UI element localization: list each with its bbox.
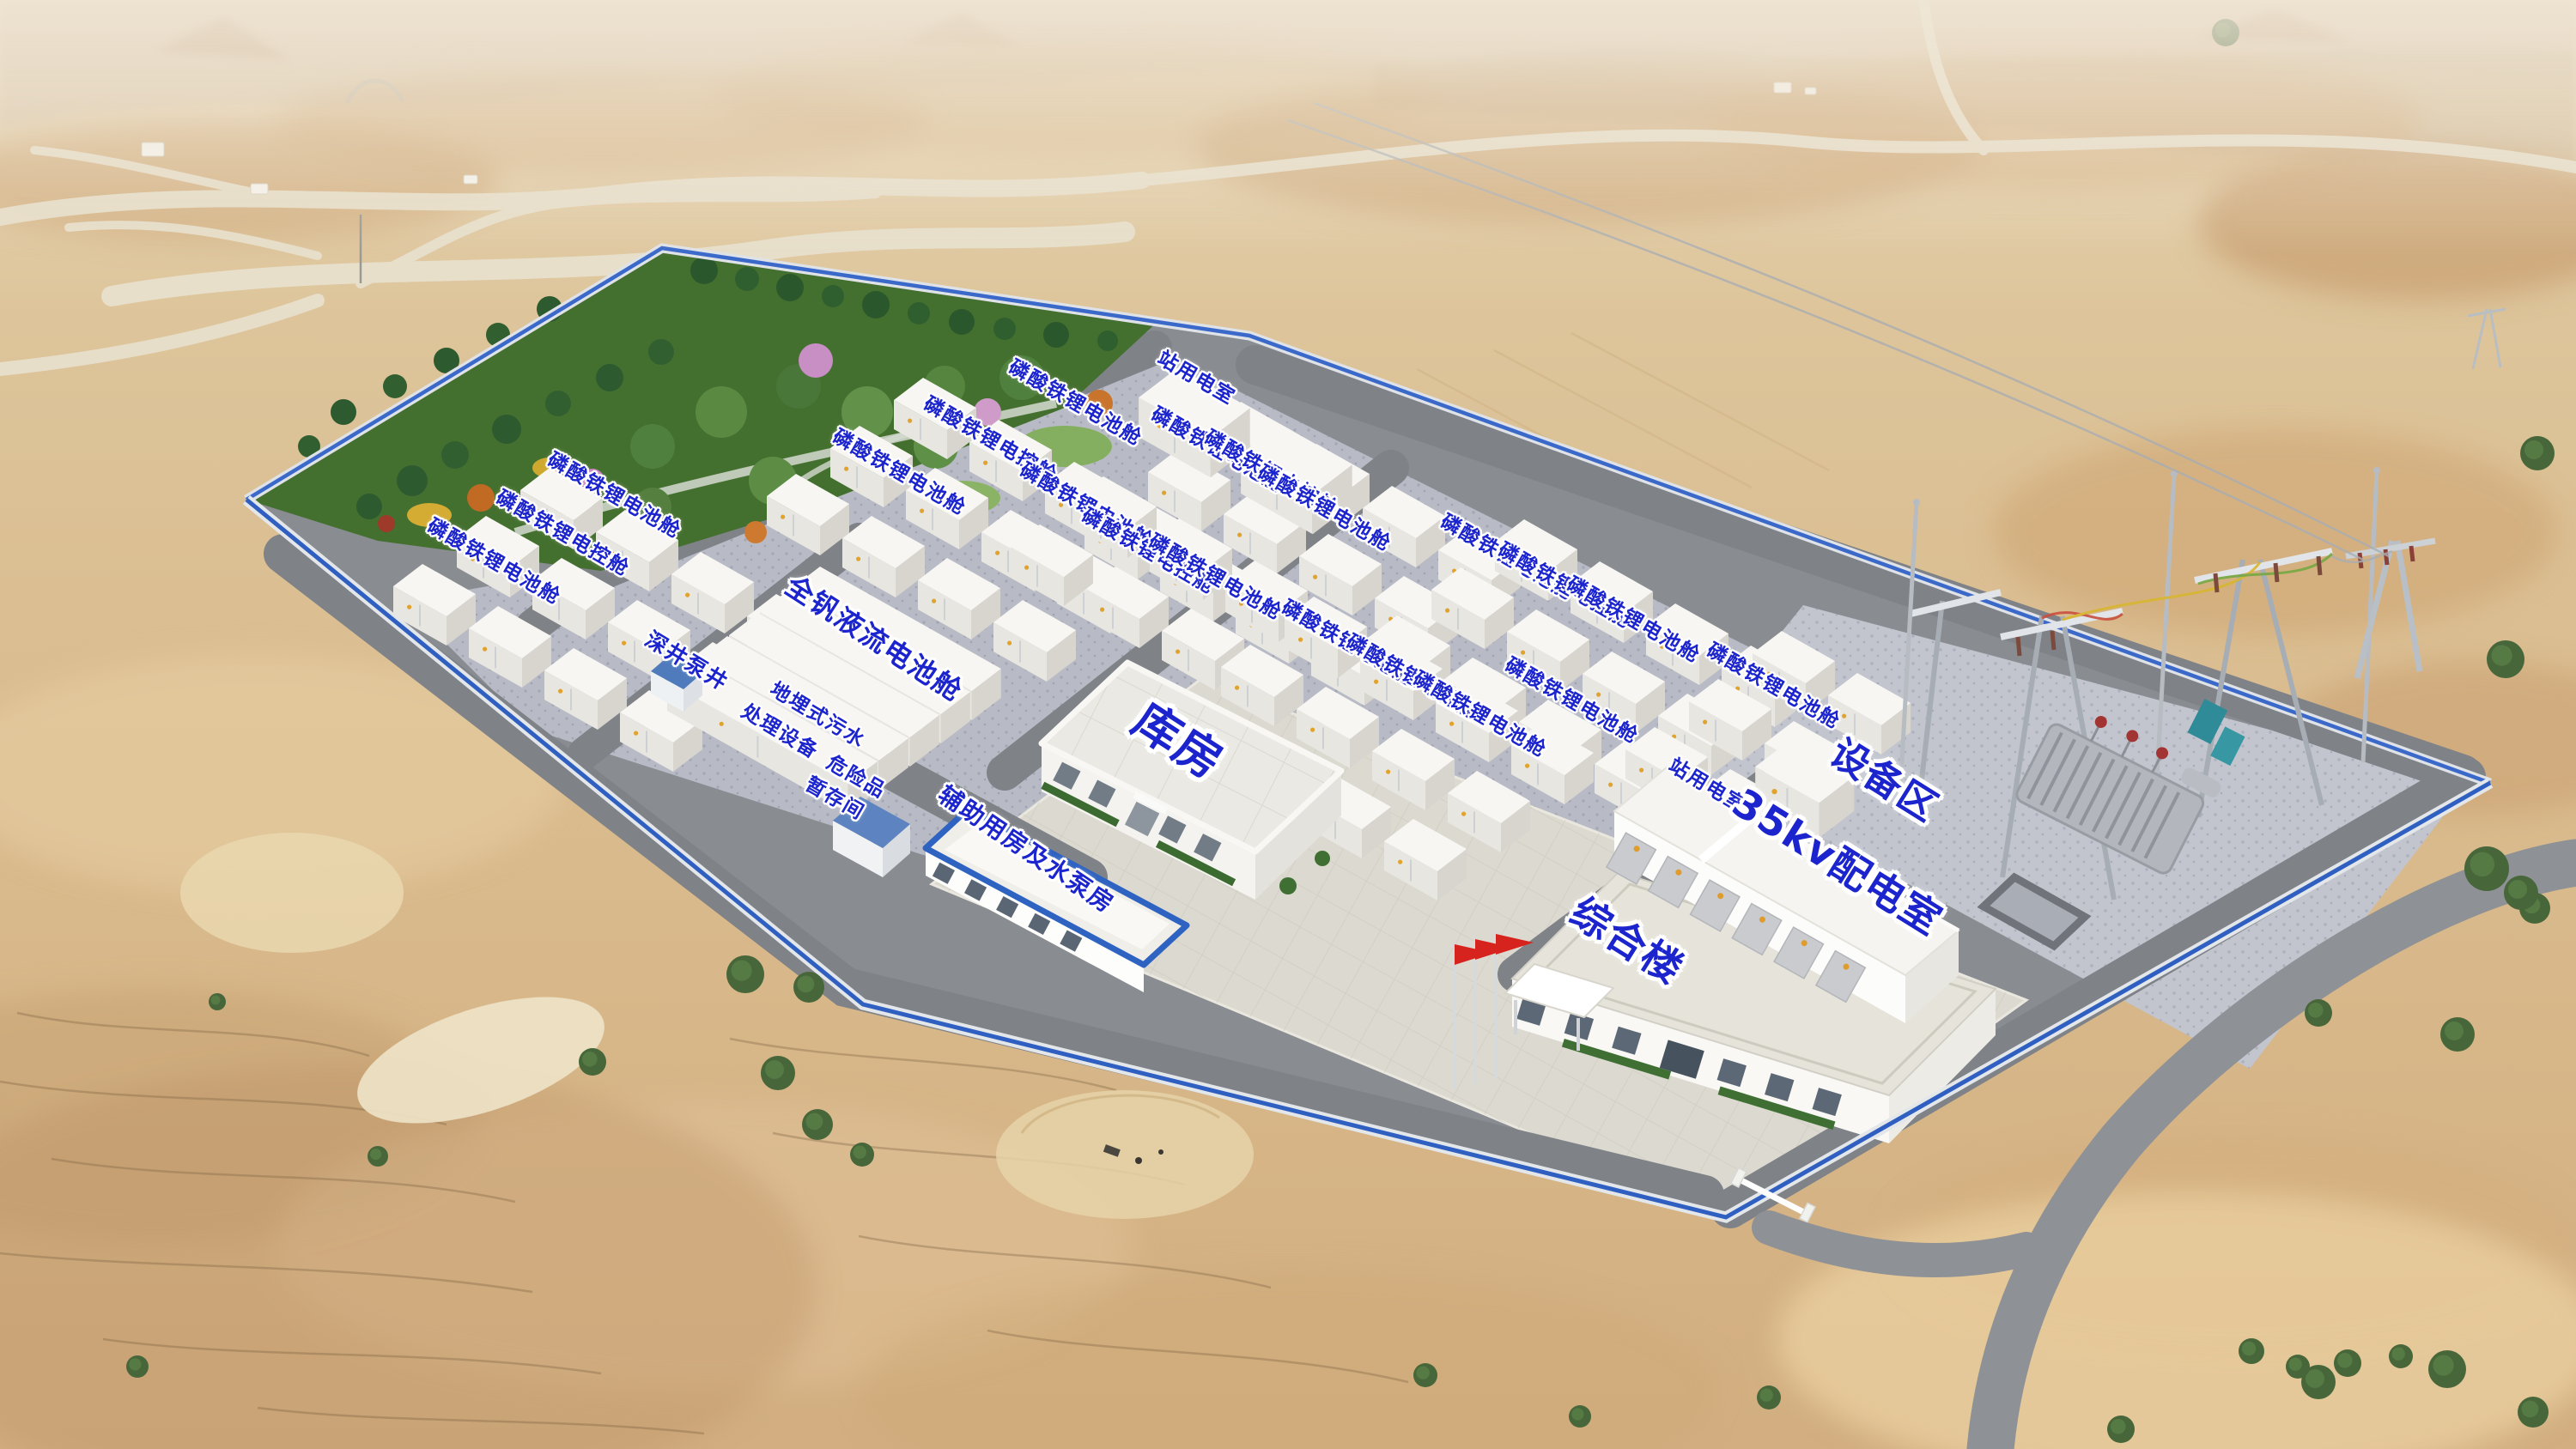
lfp-battery-cabin-label-14: 磷酸铁锂电池舱 — [1703, 640, 1843, 732]
annotation-labels-layer: 站用电室磷酸铁锂电池舱磷酸铁锂电控舱磷酸铁锂电池舱磷酸铁锂电池舱磷酸铁锂电控舱磷… — [0, 0, 2576, 1449]
station-power-room-label-1: 站用电室 — [1154, 349, 1238, 409]
auxiliary-rooms-and-pump-house-label: 辅助用房及水泵房 — [934, 782, 1119, 917]
equipment-area-label: 设备区 — [1824, 734, 1944, 828]
lfp-battery-cabin-label-1: 磷酸铁锂电池舱 — [1005, 357, 1145, 449]
lfp-battery-cabin-label-4: 磷酸铁锂电池舱 — [1254, 463, 1394, 555]
warehouse-label: 库房 — [1125, 696, 1230, 787]
comprehensive-building-label: 综合楼 — [1564, 891, 1690, 990]
aerial-site-rendering: 站用电室磷酸铁锂电池舱磷酸铁锂电控舱磷酸铁锂电池舱磷酸铁锂电池舱磷酸铁锂电控舱磷… — [0, 0, 2576, 1449]
lfp-battery-cabin-label-6: 磷酸铁锂电池舱 — [1145, 531, 1285, 623]
deep-well-pump-label: 深井泵井 — [641, 627, 732, 694]
lfp-control-cabin-label-3: 磷酸铁锂电控舱 — [1078, 506, 1218, 597]
lfp-battery-cabin-label-2: 磷酸铁锂电池舱 — [829, 427, 969, 518]
lfp-battery-cabin-label-10: 磷酸铁锂电池舱 — [1563, 574, 1703, 666]
vanadium-flow-battery-cabin-label: 全钒液流电池舱 — [781, 572, 967, 706]
